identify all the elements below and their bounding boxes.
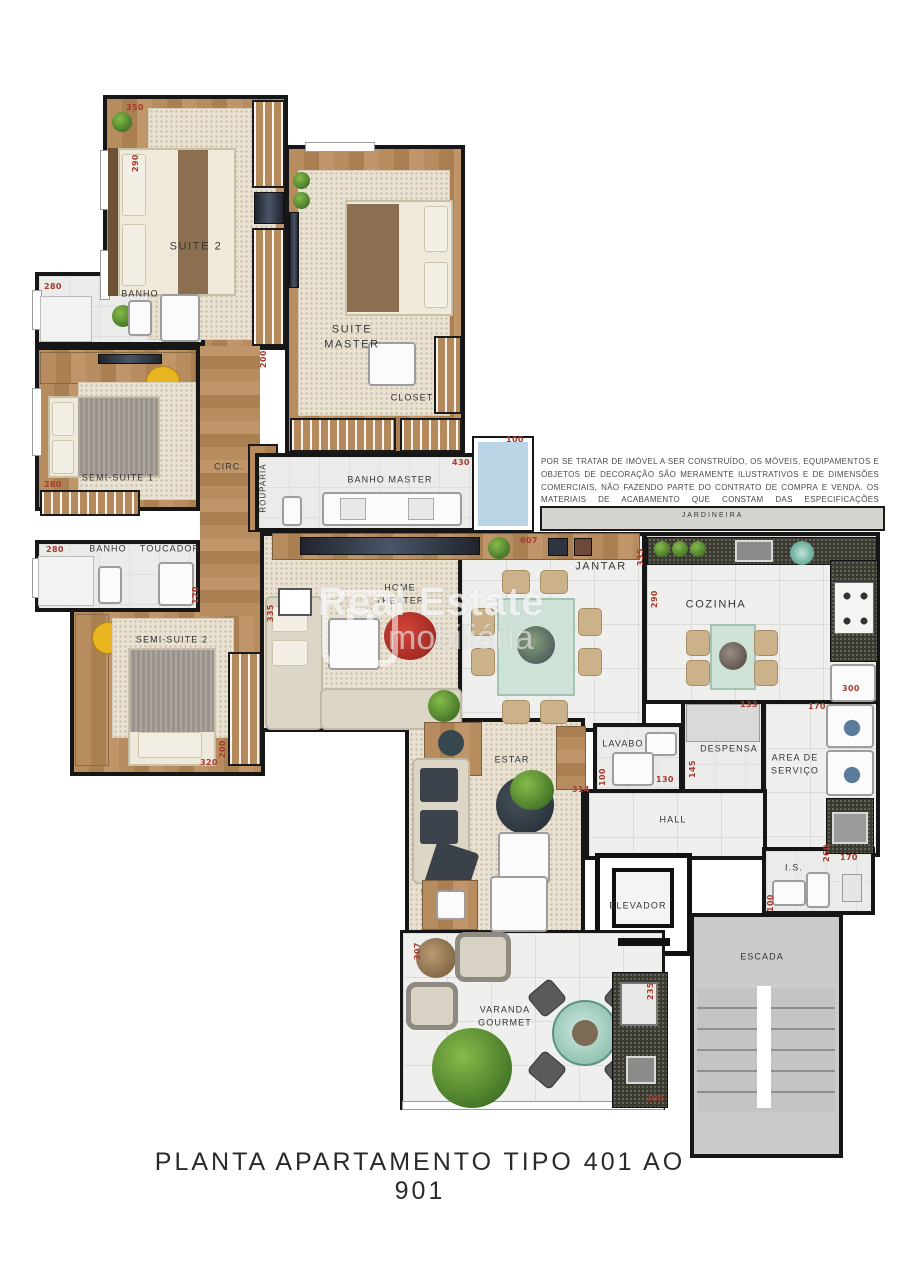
dimension-label: 170 (808, 702, 826, 711)
master-plant (293, 192, 310, 209)
master-plant (293, 172, 310, 189)
label-banho2: BANHO (89, 543, 127, 556)
plan-title: PLANTA APARTAMENTO TIPO 401 AO 901 (140, 1148, 700, 1206)
lavabo-sink (612, 752, 654, 786)
escada-divider (757, 986, 771, 1108)
label-closet: CLOSET (391, 392, 434, 405)
jantar-chair (502, 570, 530, 594)
floor-plan: SUITE 2 SUITE MASTER CLOSET BANHO SEMI-S… (0, 0, 905, 1280)
master-closet-wardrobe (400, 418, 462, 452)
ss1-pillow (52, 402, 74, 436)
dimension-label: 145 (688, 760, 697, 778)
dimension-label: 320 (200, 758, 218, 767)
varanda-table-center (572, 1020, 598, 1046)
cozinha-cabinet (830, 664, 876, 702)
dryer (826, 750, 874, 796)
washer (826, 704, 874, 748)
banho2-toilet (98, 566, 122, 604)
dimension-label: 235 (646, 982, 655, 1000)
cozinha-chair (754, 630, 778, 656)
varanda-lounge-chair (455, 932, 511, 982)
dimension-label: 100 (506, 435, 524, 444)
varanda-plant (432, 1028, 512, 1108)
cozinha-cooktop (834, 582, 874, 634)
dimension-label: 307 (413, 942, 422, 960)
window (32, 388, 42, 456)
label-escada: ESCADA (740, 951, 784, 964)
dimension-label: 133 (740, 700, 758, 709)
label-lavabo: LAVABO (602, 738, 643, 751)
jantar-chair (540, 570, 568, 594)
toucador-vanity (158, 562, 194, 606)
dimension-label: 335 (636, 548, 645, 566)
label-estar: ESTAR (495, 754, 530, 767)
master-closet-wardrobe (290, 418, 396, 452)
dimension-label: 200 (259, 350, 268, 368)
banho1-toilet (128, 300, 152, 336)
window (305, 142, 375, 152)
label-toucador: TOUCADOR (140, 543, 200, 556)
jantar-centerpiece (517, 626, 555, 664)
cozinha-plant (690, 541, 706, 557)
label-hall: HALL (660, 814, 687, 827)
jantar-chair (540, 700, 568, 724)
churrasqueira-sink (626, 1056, 656, 1084)
jantar-chair (471, 648, 495, 676)
dimension-label: 200 (218, 740, 227, 758)
ss2-pillow (138, 732, 202, 758)
label-elevador: ELEVADOR (609, 900, 666, 913)
dimension-label: 100 (598, 768, 607, 786)
estar-decor (438, 730, 464, 756)
bm-bathtub (474, 438, 532, 530)
dimension-label: 170 (840, 853, 858, 862)
jantar-chair (502, 700, 530, 724)
suite2-throw (178, 150, 208, 294)
label-suite2: SUITE 2 (170, 239, 223, 254)
despensa-shelf (686, 704, 760, 742)
suite2-plant (112, 112, 132, 132)
estar-armchair (490, 876, 548, 932)
bm-sink (408, 498, 434, 520)
ss1-pillow (52, 440, 74, 474)
watermark-logo: R (322, 590, 398, 666)
elevador-door (618, 938, 670, 946)
dimension-label: 300 (646, 1094, 664, 1103)
label-circ: CIRC. (214, 461, 244, 474)
is-shower (842, 874, 862, 902)
cozinha-centerpiece (719, 642, 747, 670)
dimension-label: 280 (46, 545, 64, 554)
dimension-label: 290 (131, 154, 140, 172)
label-jantar: JANTAR (575, 559, 627, 574)
sideboard-frame (548, 538, 568, 556)
varanda-lounge-chair (406, 982, 458, 1030)
estar-bench (556, 726, 586, 790)
dimension-label: 607 (520, 536, 538, 545)
ss2-cover (130, 650, 214, 732)
cozinha-sink (735, 540, 773, 562)
suite2-pillow (122, 224, 146, 286)
cozinha-chair (686, 630, 710, 656)
suite2-tv-unit (254, 192, 284, 224)
ss1-wardrobe (40, 490, 140, 516)
suite2-headboard (108, 148, 118, 296)
label-is: I.S. (785, 862, 803, 875)
dimension-label: 350 (126, 103, 144, 112)
cozinha-plant (654, 541, 670, 557)
estar-decor2 (436, 890, 466, 920)
cozinha-chair (686, 660, 710, 686)
dimension-label: 335 (266, 604, 275, 622)
master-wardrobe (434, 336, 462, 414)
label-semi-suite2: SEMI-SUITE 2 (136, 634, 208, 647)
jardineira-strip: JARDINEIRA (540, 506, 885, 531)
cozinha-bowl (790, 541, 814, 565)
master-cover (347, 204, 399, 312)
suite2-wardrobe (252, 228, 285, 346)
master-pillow (424, 262, 448, 308)
master-tv-panel (289, 212, 299, 288)
label-suite-master: SUITE MASTER (324, 323, 379, 354)
bm-sink (340, 498, 366, 520)
sideboard-plant (488, 537, 510, 559)
jantar-chair (578, 608, 602, 636)
label-varanda: VARANDA GOURMET (478, 1003, 532, 1028)
elevador-cab (612, 868, 674, 928)
is-sink (772, 880, 806, 906)
dimension-label: 280 (44, 282, 62, 291)
ht-pillow (272, 640, 308, 666)
jantar-chair (578, 648, 602, 676)
banho1-shower (40, 296, 92, 342)
dimension-label: 280 (44, 480, 62, 489)
ht-frame (278, 588, 312, 616)
dimension-label: 300 (842, 684, 860, 693)
label-cozinha: COZINHA (686, 597, 747, 612)
living-tv (300, 537, 480, 555)
label-rouparia: ROUPARIA (257, 463, 268, 512)
ss1-cover (78, 398, 158, 476)
bm-toilet (282, 496, 302, 526)
estar-cushion (420, 810, 458, 844)
dimension-label: 314 (572, 785, 590, 794)
servico-tank (832, 812, 868, 844)
dimension-label: 290 (650, 590, 659, 608)
suite2-wardrobe (252, 100, 285, 188)
banho2-shower (38, 556, 94, 606)
cozinha-chair (754, 660, 778, 686)
sideboard-frame (574, 538, 592, 556)
label-banho1: BANHO (121, 288, 159, 301)
dimension-label: 260 (822, 844, 831, 862)
banho1-vanity (160, 294, 200, 342)
ht-plant (428, 690, 460, 722)
dimension-label: 130 (656, 775, 674, 784)
label-area-servico: AREA DE SERVIÇO (771, 751, 819, 776)
dimension-label: 430 (452, 458, 470, 467)
master-pillow (424, 206, 448, 252)
ss2-wardrobe (228, 652, 262, 766)
label-banho-master: BANHO MASTER (347, 474, 432, 487)
jardineira-label: JARDINEIRA (542, 512, 883, 519)
label-despensa: DESPENSA (700, 743, 758, 756)
cozinha-plant (672, 541, 688, 557)
jantar-chair (471, 608, 495, 636)
label-semi-suite1: SEMI-SUITE 1 (82, 472, 154, 485)
estar-plant (510, 770, 554, 810)
is-toilet (806, 872, 830, 908)
estar-cushion (420, 768, 458, 802)
dimension-label: 100 (766, 894, 775, 912)
ss1-tv (98, 354, 162, 364)
varanda-side-table (416, 938, 456, 978)
dimension-label: 120 (191, 586, 200, 604)
